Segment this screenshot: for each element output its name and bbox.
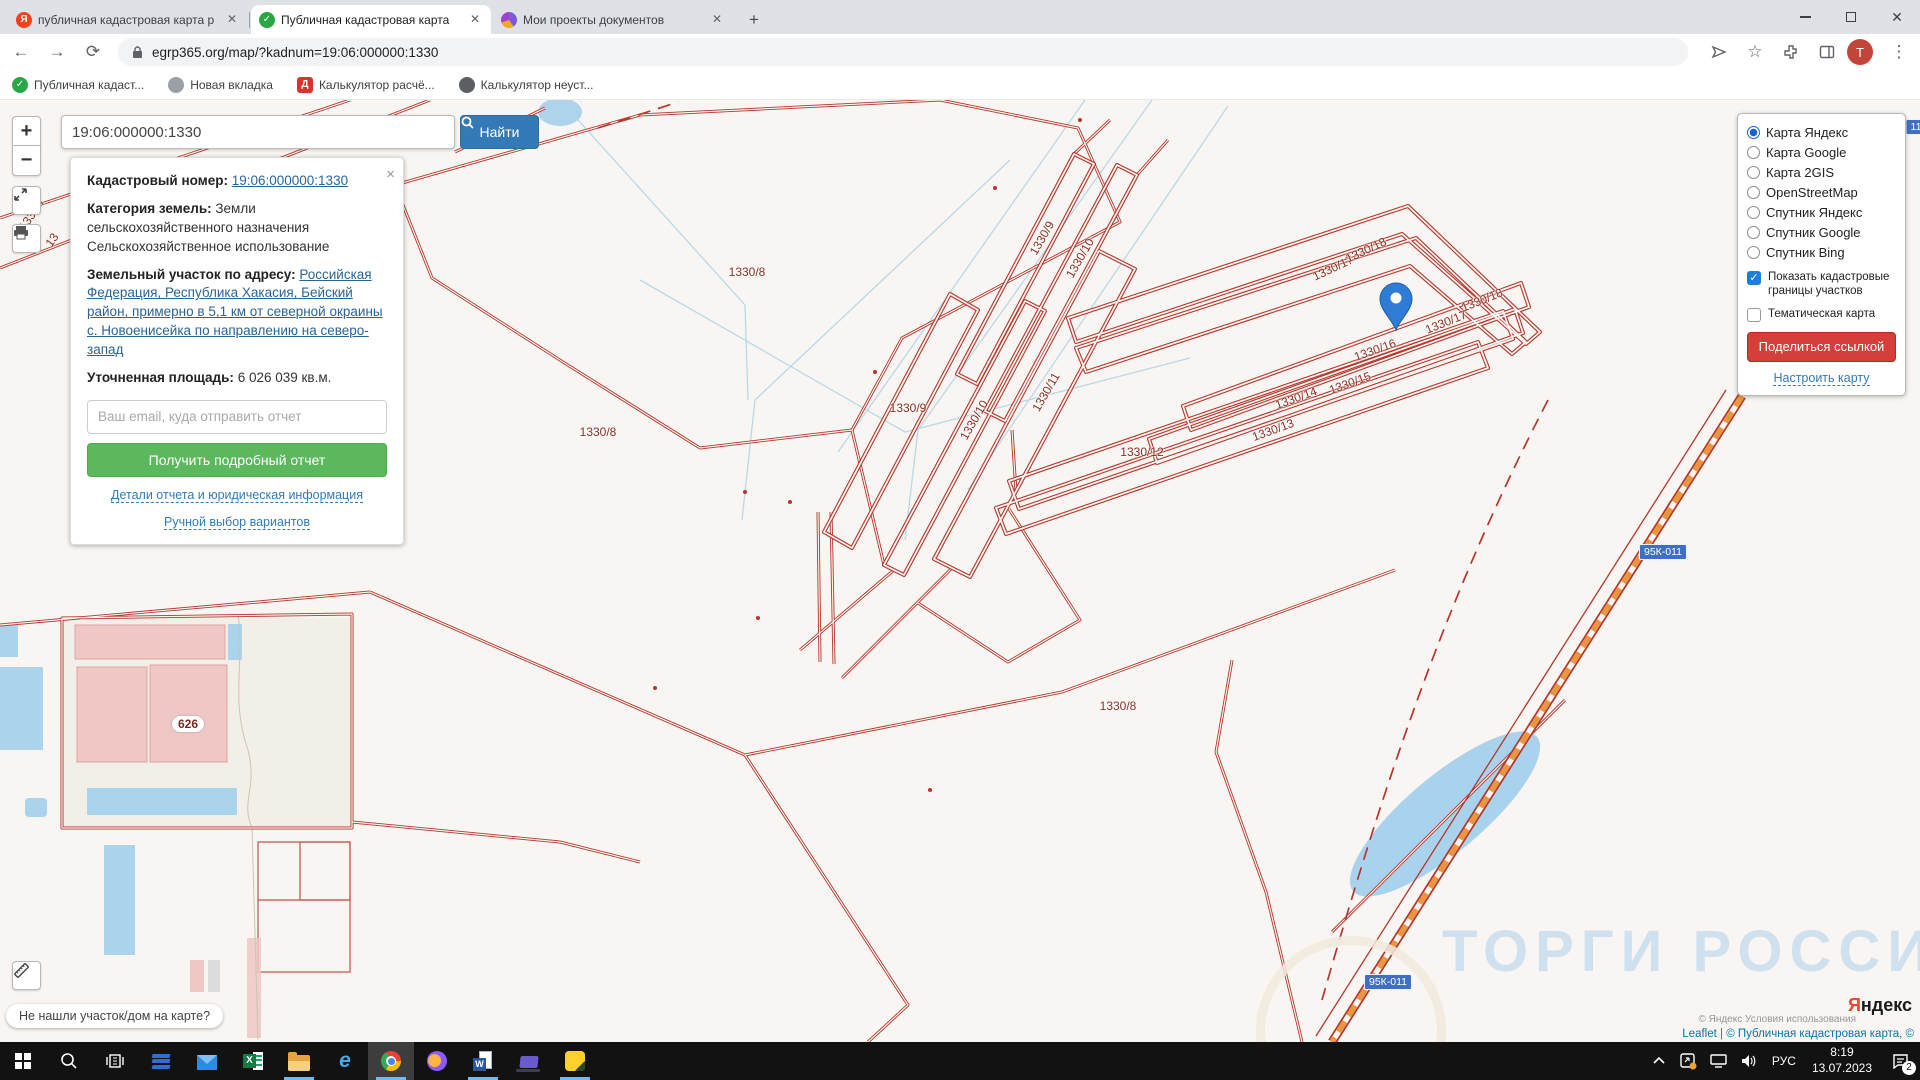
bookmark-favicon (459, 77, 475, 93)
app-internet-explorer[interactable]: e (322, 1042, 368, 1080)
tray-chevron-icon[interactable] (1644, 1042, 1674, 1080)
minimize-button[interactable] (1782, 0, 1828, 34)
blue-stack-icon (152, 1052, 170, 1070)
bookmark-star-icon[interactable]: ☆ (1740, 37, 1770, 67)
layer-option[interactable]: Карта Яндекс (1747, 122, 1896, 142)
task-view-button[interactable] (92, 1042, 138, 1080)
volume-icon[interactable] (1734, 1042, 1764, 1080)
windows-taskbar: X e W РУС 8:19 13.07.2023 (0, 1042, 1920, 1080)
area-value: 6 026 039 кв.м. (238, 370, 332, 385)
report-details-link[interactable]: Детали отчета и юридическая информация (87, 487, 387, 505)
printer-icon (13, 225, 29, 240)
maximize-button[interactable] (1828, 0, 1874, 34)
area-label: Уточненная площадь: (87, 370, 234, 385)
report-details-label: Детали отчета и юридическая информация (111, 488, 363, 503)
forward-icon[interactable]: → (42, 37, 72, 67)
extensions-puzzle-icon[interactable] (1776, 37, 1806, 67)
road-shield: 95К-011 (1364, 974, 1412, 990)
tab-2-active[interactable]: ✓ Публичная кадастровая карта ✕ (251, 5, 491, 34)
map-attribution: Leaflet | © Публичная кадастровая карта,… (1682, 1028, 1914, 1040)
layer-option[interactable]: OpenStreetMap (1747, 182, 1896, 202)
taskbar-search-button[interactable] (46, 1042, 92, 1080)
manual-select-link[interactable]: Ручной выбор вариантов (87, 514, 387, 532)
url-bar[interactable]: egrp365.org/map/?kadnum=19:06:000000:133… (118, 38, 1688, 66)
tab-separator (249, 12, 250, 28)
yandex-logo: Яндекс (1848, 995, 1912, 1016)
address-label: Земельный участок по адресу: (87, 267, 296, 282)
notification-center-button[interactable]: 2 (1880, 1042, 1920, 1080)
parcel-label: 1330/12 (1120, 445, 1163, 459)
thematic-map-checkbox-row[interactable]: Тематическая карта (1747, 307, 1896, 322)
layer-label: Карта Яндекс (1766, 125, 1848, 140)
fullscreen-button[interactable] (12, 186, 41, 215)
share-link-button[interactable]: Поделиться ссылкой (1747, 332, 1896, 362)
ruler-icon (13, 962, 30, 979)
bookmark-item[interactable]: ✓Публичная кадаст... (12, 77, 144, 93)
bookmark-label: Публичная кадаст... (34, 78, 144, 92)
layer-label: Спутник Bing (1766, 245, 1845, 260)
layer-label: Карта 2GIS (1766, 165, 1834, 180)
excel-icon: X (243, 1051, 263, 1071)
notification-badge: 2 (1902, 1061, 1916, 1075)
tab-title: Публичная кадастровая карта (281, 13, 461, 27)
docs-favicon (501, 12, 517, 28)
taskbar-clock[interactable]: 8:19 13.07.2023 (1804, 1045, 1880, 1076)
manual-select-label: Ручной выбор вариантов (164, 515, 310, 530)
cadastral-number-label: Кадастровый номер: (87, 173, 228, 188)
check-favicon: ✓ (259, 12, 275, 28)
bookmark-favicon: Д (297, 77, 313, 93)
url-text: egrp365.org/map/?kadnum=19:06:000000:133… (152, 45, 438, 60)
parcel-label: 1330/9 (890, 401, 927, 415)
radio-selected-icon[interactable] (1747, 126, 1760, 139)
chrome-icon (381, 1051, 401, 1071)
navbar-actions: ☆ Т ⋮ (1698, 37, 1914, 67)
radio-icon[interactable] (1747, 246, 1760, 259)
tab-3[interactable]: Мои проекты документов ✕ (493, 5, 733, 34)
tab-title: публичная кадастровая карта р (38, 13, 218, 27)
layer-label: OpenStreetMap (1766, 185, 1858, 200)
app-chrome-active[interactable] (368, 1042, 414, 1080)
tray-app-icon[interactable] (1674, 1042, 1704, 1080)
back-icon[interactable]: ← (6, 37, 36, 67)
bookmark-favicon: ✓ (12, 77, 28, 93)
bookmark-favicon (168, 77, 184, 93)
network-icon[interactable] (1704, 1042, 1734, 1080)
app-r7office[interactable] (138, 1042, 184, 1080)
2gis-icon (565, 1051, 585, 1071)
search-icon (60, 1052, 78, 1070)
configure-map-link[interactable]: Настроить карту (1747, 371, 1896, 385)
profile-avatar[interactable]: Т (1847, 39, 1873, 65)
clock-time: 8:19 (1830, 1045, 1853, 1059)
show-borders-checkbox-row[interactable]: ✓Показать кадастровые границы участков (1747, 270, 1896, 299)
bookmark-item[interactable]: ДКалькулятор расчё... (297, 77, 435, 93)
get-report-button[interactable]: Получить подробный отчет (87, 443, 387, 477)
print-button[interactable] (12, 224, 41, 253)
menu-kebab-icon[interactable]: ⋮ (1884, 37, 1914, 67)
checkbox-label: Тематическая карта (1768, 307, 1875, 321)
tab-1[interactable]: Я публичная кадастровая карта р ✕ (8, 5, 248, 34)
app-file-explorer[interactable] (276, 1042, 322, 1080)
find-button[interactable]: Найти (460, 115, 539, 149)
browser-titlebar: Я публичная кадастровая карта р ✕ ✓ Публ… (0, 0, 1920, 34)
card-close-icon[interactable]: × (386, 164, 395, 185)
folder-icon (288, 1055, 310, 1071)
tab-close-icon[interactable]: ✕ (467, 12, 483, 28)
layer-option[interactable]: Спутник Google (1747, 222, 1896, 242)
cadastral-map[interactable]: ТОРГИ РОССИИ 1330/81330/91330/101330/913… (0, 100, 1920, 1042)
yandex-favicon: Я (16, 12, 32, 28)
pkk-link[interactable]: © Публичная кадастровая карта, © (1726, 1028, 1914, 1040)
desktop: Я публичная кадастровая карта р ✕ ✓ Публ… (0, 0, 1920, 1080)
zoom-out-button[interactable]: − (12, 146, 41, 176)
share-icon[interactable] (1704, 37, 1734, 67)
radio-icon[interactable] (1747, 166, 1760, 179)
layer-option[interactable]: Карта 2GIS (1747, 162, 1896, 182)
bookmarks-bar: ✓Публичная кадаст... Новая вкладка ДКаль… (0, 70, 1920, 100)
laptop-icon (519, 1056, 538, 1068)
tab-close-icon[interactable]: ✕ (224, 12, 240, 28)
email-input[interactable] (87, 400, 387, 434)
parcel-label: 1330/8 (1100, 699, 1137, 713)
configure-map-label: Настроить карту (1773, 371, 1869, 386)
land-use-value: Сельскохозяйственное использование (87, 239, 329, 254)
expand-arrows-icon (13, 187, 28, 202)
road-shield: 95К-011 (1639, 544, 1687, 560)
parcel-info-card: × Кадастровый номер: 19:06:000000:1330 К… (70, 157, 404, 545)
reload-icon[interactable]: ⟳ (78, 37, 108, 67)
windows-logo-icon (15, 1053, 31, 1069)
new-tab-button[interactable]: + (742, 8, 766, 32)
ie-icon: e (339, 1049, 351, 1073)
find-button-label: Найти (480, 124, 520, 140)
start-button[interactable] (0, 1042, 46, 1080)
radio-icon[interactable] (1747, 226, 1760, 239)
search-input[interactable] (61, 115, 455, 149)
land-category-label: Категория земель: (87, 201, 212, 216)
zoom-in-button[interactable]: + (12, 116, 41, 146)
search-icon (461, 116, 474, 129)
watermark-text: ТОРГИ РОССИИ (1442, 918, 1920, 985)
language-indicator[interactable]: РУС (1764, 1054, 1804, 1068)
word-icon: W (473, 1051, 493, 1071)
map-layers-panel: Карта Яндекс Карта Google Карта 2GIS Ope… (1737, 113, 1906, 396)
leaflet-link[interactable]: Leaflet (1682, 1028, 1717, 1040)
layer-option[interactable]: Спутник Bing (1747, 242, 1896, 262)
cadastral-number-link[interactable]: 19:06:000000:1330 (232, 173, 348, 188)
app-word[interactable]: W (460, 1042, 506, 1080)
bookmark-item[interactable]: Новая вкладка (168, 77, 273, 93)
app-laptop[interactable] (506, 1042, 552, 1080)
system-tray: РУС 8:19 13.07.2023 2 (1644, 1042, 1920, 1080)
checkbox-label: Показать кадастровые границы участков (1768, 270, 1896, 299)
layer-option[interactable]: Спутник Яндекс (1747, 202, 1896, 222)
lock-icon (132, 46, 143, 59)
parcel-label: 1330/8 (729, 265, 766, 279)
layer-label: Спутник Яндекс (1766, 205, 1862, 220)
radio-icon[interactable] (1747, 146, 1760, 159)
road-shield: 11 (1906, 119, 1920, 135)
checkbox-checked-icon[interactable]: ✓ (1747, 271, 1761, 285)
bookmark-label: Калькулятор расчё... (319, 78, 435, 92)
app-browser-purple[interactable] (414, 1042, 460, 1080)
bookmark-item[interactable]: Калькулятор неуст... (459, 77, 594, 93)
bookmark-label: Калькулятор неуст... (481, 78, 594, 92)
sidepanel-icon[interactable] (1812, 37, 1842, 67)
close-button[interactable]: ✕ (1874, 0, 1920, 34)
app-mail[interactable] (184, 1042, 230, 1080)
app-2gis[interactable] (552, 1042, 598, 1080)
task-view-icon (106, 1053, 124, 1069)
parcel-badge: 626 (172, 716, 204, 732)
bookmark-label: Новая вкладка (190, 78, 273, 92)
parcel-label: 1330/8 (580, 425, 617, 439)
not-found-tooltip[interactable]: Не нашли участок/дом на карте? (6, 1004, 223, 1028)
mail-icon (197, 1055, 217, 1070)
radio-icon[interactable] (1747, 206, 1760, 219)
yandex-terms: © Яндекс Условия использования (1698, 1014, 1856, 1025)
layer-option[interactable]: Карта Google (1747, 142, 1896, 162)
app-excel[interactable]: X (230, 1042, 276, 1080)
radio-icon[interactable] (1747, 186, 1760, 199)
clock-date: 13.07.2023 (1812, 1061, 1872, 1075)
layer-label: Спутник Google (1766, 225, 1861, 240)
tab-close-icon[interactable]: ✕ (709, 12, 725, 28)
checkbox-icon[interactable] (1747, 308, 1761, 322)
tab-title: Мои проекты документов (523, 13, 703, 27)
purple-browser-icon (427, 1051, 447, 1071)
layer-label: Карта Google (1766, 145, 1846, 160)
browser-navbar: ← → ⟳ egrp365.org/map/?kadnum=19:06:0000… (0, 34, 1920, 70)
ruler-button[interactable] (12, 961, 41, 990)
